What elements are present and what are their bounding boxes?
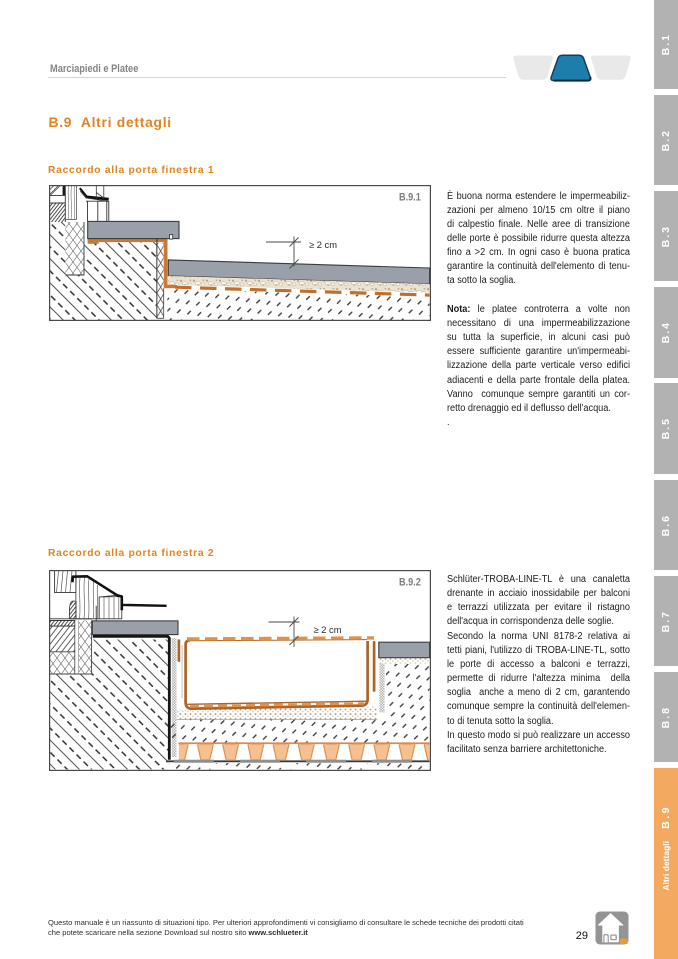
svg-text:≥ 2 cm: ≥ 2 cm [314,625,342,635]
svg-text:≥ 2 cm: ≥ 2 cm [309,240,337,250]
svg-text:B.9.1: B.9.1 [399,191,421,203]
svg-text:B.9.2: B.9.2 [399,576,421,588]
